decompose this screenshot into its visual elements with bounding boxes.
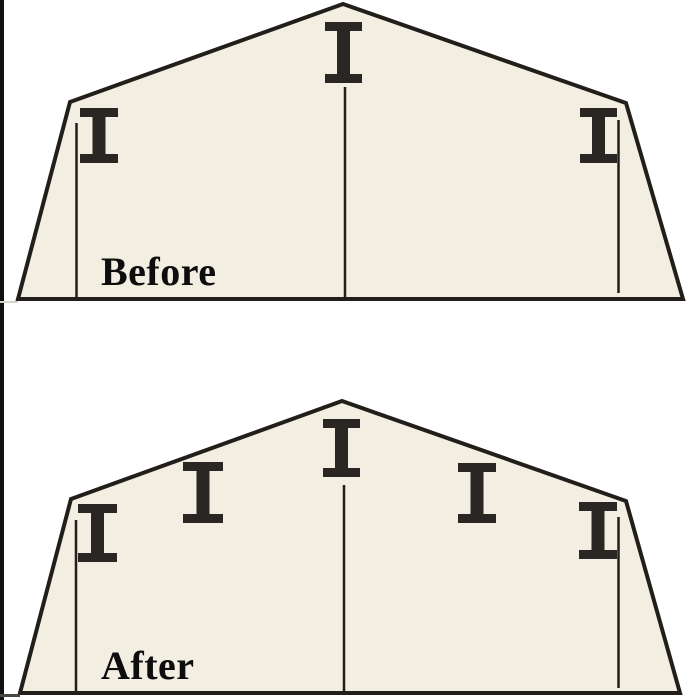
shed-diagram	[0, 0, 700, 700]
baseline-stub-bottom	[0, 694, 20, 697]
baseline-stub-top	[0, 301, 18, 303]
before-label: Before	[101, 252, 217, 292]
figure-canvas: Before After	[0, 0, 700, 700]
left-edge-artifact	[0, 0, 4, 700]
after-label: After	[101, 646, 195, 686]
